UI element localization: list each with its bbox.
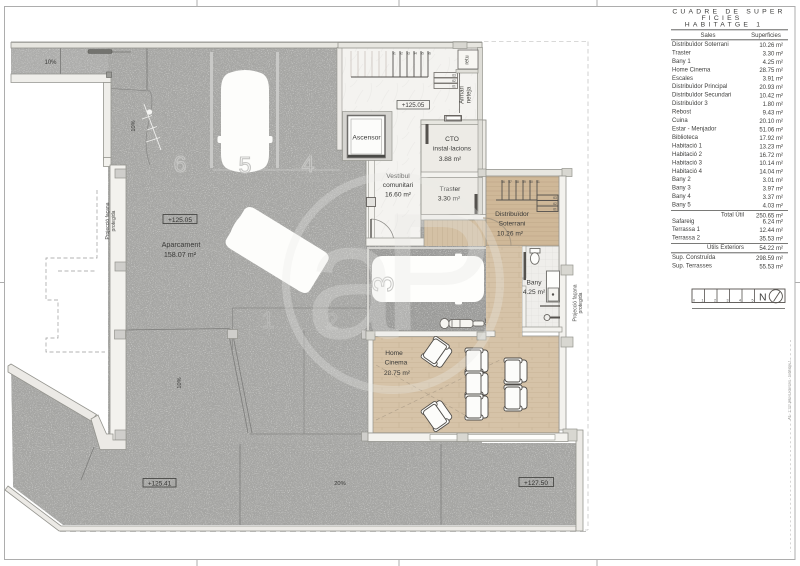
svg-text:Aparcament: Aparcament: [162, 240, 201, 249]
svg-text:51.06 m²: 51.06 m²: [759, 127, 783, 133]
svg-text:5: 5: [239, 152, 252, 178]
svg-text:63: 63: [452, 74, 456, 78]
svg-text:3.97 m²: 3.97 m²: [763, 187, 783, 193]
svg-text:+127.50: +127.50: [524, 480, 548, 487]
svg-text:10%: 10%: [131, 120, 137, 131]
svg-text:3: 3: [727, 299, 729, 303]
svg-text:Distribuïdor Soterrani: Distribuïdor Soterrani: [672, 42, 729, 48]
svg-text:10%: 10%: [44, 60, 57, 66]
svg-text:Bany 5: Bany 5: [672, 203, 691, 209]
svg-text:52: 52: [399, 52, 403, 56]
svg-text:298.59 m²: 298.59 m²: [756, 256, 783, 262]
svg-text:+125.41: +125.41: [148, 480, 172, 487]
svg-text:54: 54: [413, 52, 417, 56]
svg-text:Distribuïdor: Distribuïdor: [495, 211, 530, 218]
svg-text:Terrassa 2: Terrassa 2: [672, 236, 701, 242]
svg-text:0: 0: [693, 299, 695, 303]
svg-text:Superficies: Superficies: [751, 33, 781, 39]
svg-text:Distribuïdor 3: Distribuïdor 3: [672, 101, 708, 107]
svg-text:53: 53: [406, 52, 410, 56]
svg-text:Sup. Construïda: Sup. Construïda: [672, 255, 716, 261]
svg-text:3.91 m²: 3.91 m²: [763, 77, 783, 83]
svg-text:3.01 m²: 3.01 m²: [763, 178, 783, 184]
svg-text:Habitació 2: Habitació 2: [672, 152, 703, 158]
svg-text:10.26 m²: 10.26 m²: [497, 231, 524, 238]
svg-text:A3 - 1:100 plànol soterrani -: A3 - 1:100 plànol soterrani - habitatge …: [788, 360, 792, 420]
svg-text:56: 56: [427, 52, 431, 56]
svg-text:17.92 m²: 17.92 m²: [759, 136, 783, 142]
svg-text:neteja: neteja: [467, 86, 473, 103]
svg-text:35.53 m²: 35.53 m²: [759, 237, 783, 243]
svg-text:Biblioteca: Biblioteca: [672, 135, 699, 141]
svg-text:61: 61: [536, 180, 540, 184]
svg-text:55.53 m²: 55.53 m²: [759, 264, 783, 270]
svg-text:Bany 3: Bany 3: [672, 186, 691, 192]
svg-text:Distribuïdor Secundari: Distribuïdor Secundari: [672, 93, 731, 99]
svg-text:3.30 m²: 3.30 m²: [763, 51, 783, 57]
svg-text:13.23 m²: 13.23 m²: [759, 144, 783, 150]
svg-text:59: 59: [522, 180, 526, 184]
svg-text:Armari: Armari: [460, 86, 466, 104]
svg-text:250.65 m²: 250.65 m²: [756, 213, 783, 219]
svg-text:Bany 1: Bany 1: [672, 59, 691, 65]
svg-text:4: 4: [739, 299, 741, 303]
svg-text:retu: retu: [465, 55, 471, 64]
svg-text:63: 63: [553, 196, 557, 200]
svg-text:6.24 m²: 6.24 m²: [763, 220, 783, 226]
svg-text:+125.05: +125.05: [402, 102, 425, 109]
svg-text:Distribuïdor Principal: Distribuïdor Principal: [672, 84, 727, 90]
svg-text:1: 1: [702, 299, 704, 303]
svg-text:28.75 m²: 28.75 m²: [759, 68, 783, 74]
svg-text:instal·lacions: instal·lacions: [433, 146, 472, 153]
svg-text:Traster: Traster: [672, 51, 691, 57]
svg-text:12.44 m²: 12.44 m²: [759, 228, 783, 234]
svg-text:Estar - Menjador: Estar - Menjador: [672, 127, 716, 133]
svg-text:20.93 m²: 20.93 m²: [759, 85, 783, 91]
svg-text:protegida: protegida: [111, 210, 117, 231]
svg-text:Escales: Escales: [672, 76, 693, 82]
svg-text:1.80 m²: 1.80 m²: [763, 102, 783, 108]
svg-text:5: 5: [752, 299, 754, 303]
svg-text:10.26 m²: 10.26 m²: [759, 43, 783, 49]
svg-text:Cuina: Cuina: [672, 118, 688, 124]
svg-text:56: 56: [501, 180, 505, 184]
svg-text:1: 1: [262, 307, 275, 333]
svg-text:61: 61: [452, 85, 456, 89]
svg-text:Bany: Bany: [526, 280, 542, 287]
svg-text:Útils Exteriors: Útils Exteriors: [707, 244, 744, 251]
svg-text:Ascensor: Ascensor: [352, 135, 381, 142]
svg-text:14.04 m²: 14.04 m²: [759, 170, 783, 176]
svg-text:62: 62: [452, 79, 456, 83]
svg-text:Total Útil: Total Útil: [721, 212, 744, 219]
svg-text:P: P: [381, 178, 493, 366]
svg-text:57: 57: [508, 180, 512, 184]
svg-text:+125.05: +125.05: [168, 217, 192, 224]
svg-text:58: 58: [515, 180, 519, 184]
svg-text:10.14 m²: 10.14 m²: [759, 161, 783, 167]
svg-text:158.07 m²: 158.07 m²: [164, 250, 197, 259]
svg-text:10%: 10%: [177, 377, 183, 388]
svg-text:Soterrani: Soterrani: [499, 221, 526, 228]
svg-text:3.88 m²: 3.88 m²: [439, 156, 462, 163]
svg-text:4.25 m²: 4.25 m²: [523, 289, 546, 296]
svg-text:10.42 m²: 10.42 m²: [759, 94, 783, 100]
svg-text:Terrassa 1: Terrassa 1: [672, 227, 701, 233]
svg-text:4.03 m²: 4.03 m²: [763, 203, 783, 209]
svg-text:Bany 4: Bany 4: [672, 194, 691, 200]
svg-text:N: N: [759, 292, 767, 304]
svg-text:Rebost: Rebost: [672, 110, 691, 116]
svg-text:Safareig: Safareig: [672, 219, 694, 225]
svg-text:55: 55: [420, 52, 424, 56]
svg-text:Home Cinema: Home Cinema: [672, 67, 711, 73]
svg-text:2: 2: [714, 299, 716, 303]
svg-text:62: 62: [553, 202, 557, 206]
svg-text:6: 6: [174, 151, 187, 177]
svg-text:Habitació 3: Habitació 3: [672, 160, 703, 166]
svg-text:Bany 2: Bany 2: [672, 177, 691, 183]
svg-text:4: 4: [302, 151, 315, 177]
svg-text:Sup. Terrasses: Sup. Terrasses: [672, 263, 712, 269]
svg-text:20.10 m²: 20.10 m²: [759, 119, 783, 125]
svg-text:61: 61: [553, 208, 557, 212]
svg-text:Sales: Sales: [700, 33, 715, 39]
svg-text:4.25 m²: 4.25 m²: [763, 60, 783, 66]
svg-text:60: 60: [529, 180, 533, 184]
svg-text:16.72 m²: 16.72 m²: [759, 153, 783, 159]
svg-text:54.22 m²: 54.22 m²: [759, 246, 783, 252]
svg-text:51: 51: [392, 52, 396, 56]
svg-text:protegida: protegida: [578, 292, 584, 313]
svg-text:HABITATGE 1: HABITATGE 1: [685, 22, 763, 29]
svg-text:CTO: CTO: [445, 136, 459, 143]
svg-text:20%: 20%: [334, 481, 346, 487]
svg-text:Habitació 4: Habitació 4: [672, 169, 703, 175]
svg-text:9.43 m²: 9.43 m²: [763, 111, 783, 117]
svg-text:Habitació 1: Habitació 1: [672, 143, 703, 149]
svg-text:3.37 m²: 3.37 m²: [763, 195, 783, 201]
